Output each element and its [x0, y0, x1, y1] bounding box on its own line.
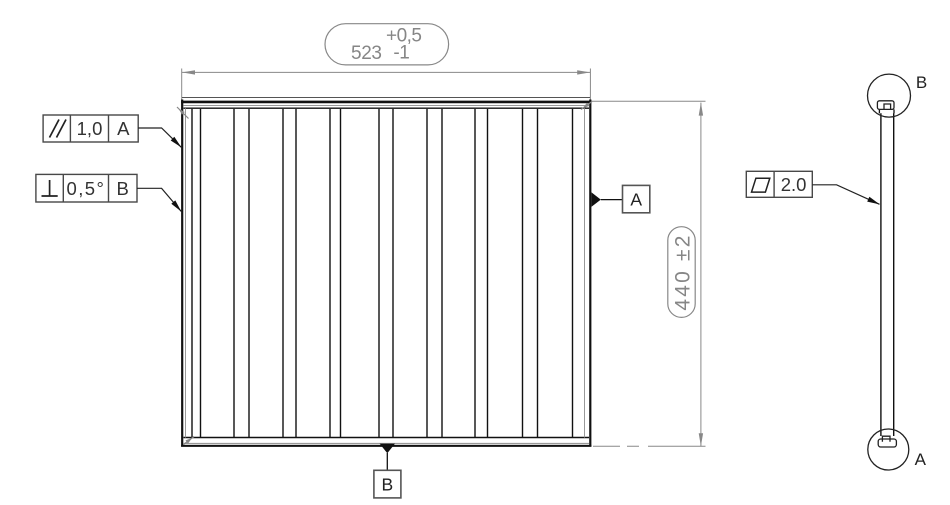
svg-text:523: 523: [351, 43, 382, 64]
svg-text:A: A: [630, 190, 642, 210]
svg-text:0,5°: 0,5°: [67, 178, 106, 199]
svg-text:+0,5: +0,5: [386, 26, 422, 47]
svg-text:B: B: [117, 178, 129, 199]
svg-text:A: A: [117, 118, 130, 139]
svg-text:440 ±2: 440 ±2: [671, 233, 694, 310]
svg-text:B: B: [916, 73, 927, 92]
svg-text:A: A: [915, 450, 927, 469]
svg-text:2.0: 2.0: [781, 174, 807, 195]
svg-text:B: B: [382, 475, 394, 495]
svg-text:1,0: 1,0: [77, 118, 103, 139]
